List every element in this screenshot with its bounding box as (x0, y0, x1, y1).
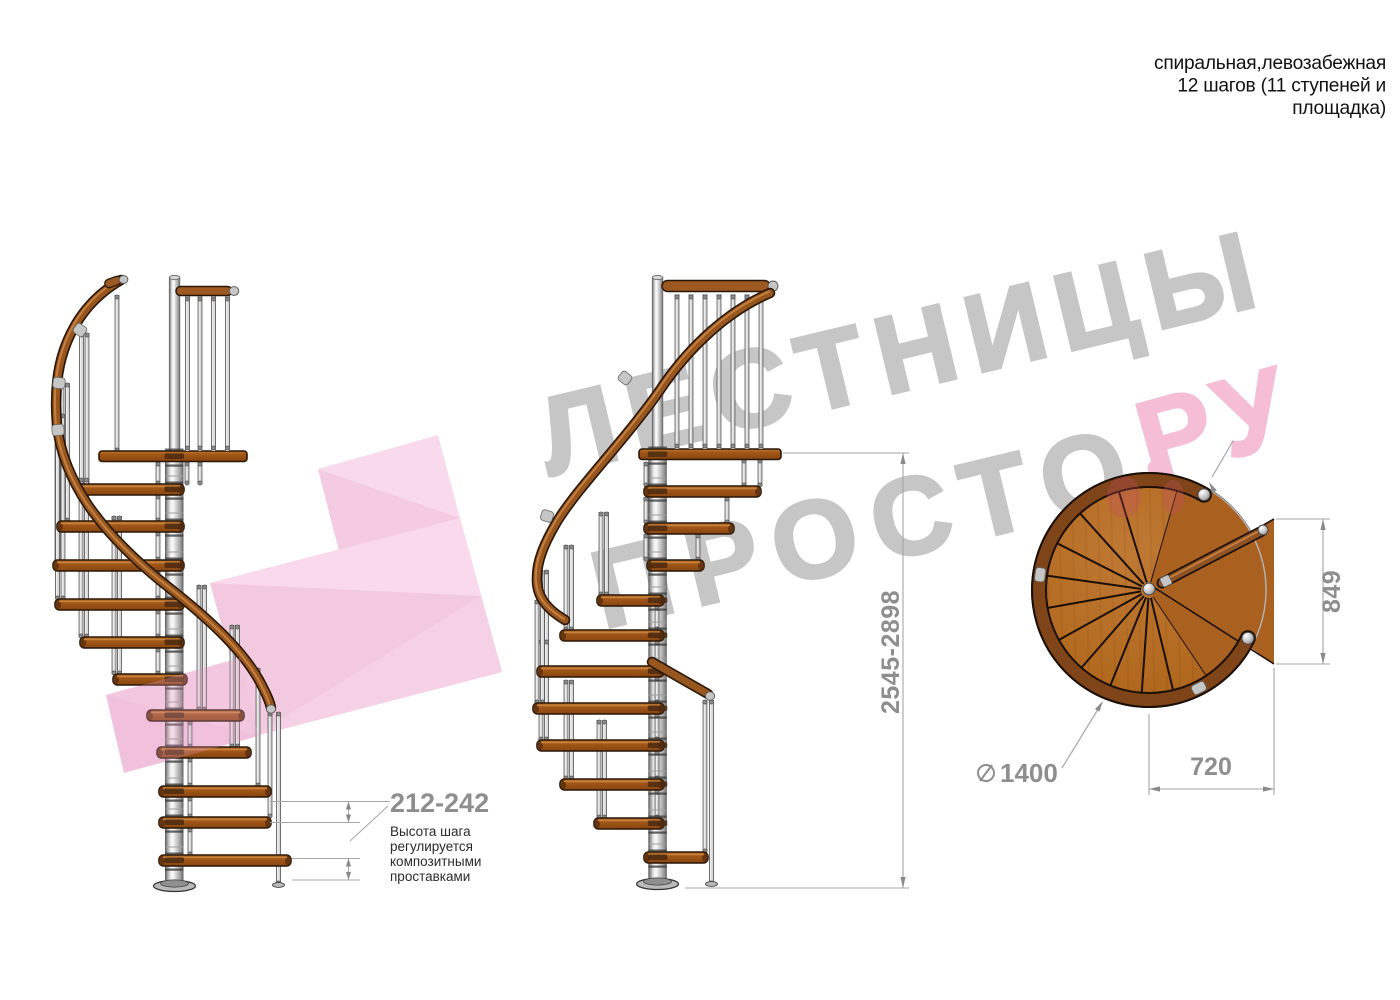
svg-text:12 шагов (11 ступеней и: 12 шагов (11 ступеней и (1177, 76, 1386, 97)
svg-text:спиральная,левозабежная: спиральная,левозабежная (1154, 53, 1386, 74)
svg-text:849: 849 (1318, 570, 1346, 613)
svg-text:композитными: композитными (390, 854, 481, 869)
svg-text:проставками: проставками (390, 869, 470, 884)
svg-text:регулируется: регулируется (390, 839, 473, 854)
svg-text:720: 720 (1190, 753, 1232, 781)
svg-text:1400: 1400 (1000, 758, 1058, 788)
svg-text:площадка): площадка) (1292, 98, 1386, 119)
svg-text:Высота шага: Высота шага (390, 824, 471, 839)
svg-text:212-242: 212-242 (390, 788, 489, 818)
svg-text:2545-2898: 2545-2898 (877, 590, 905, 714)
